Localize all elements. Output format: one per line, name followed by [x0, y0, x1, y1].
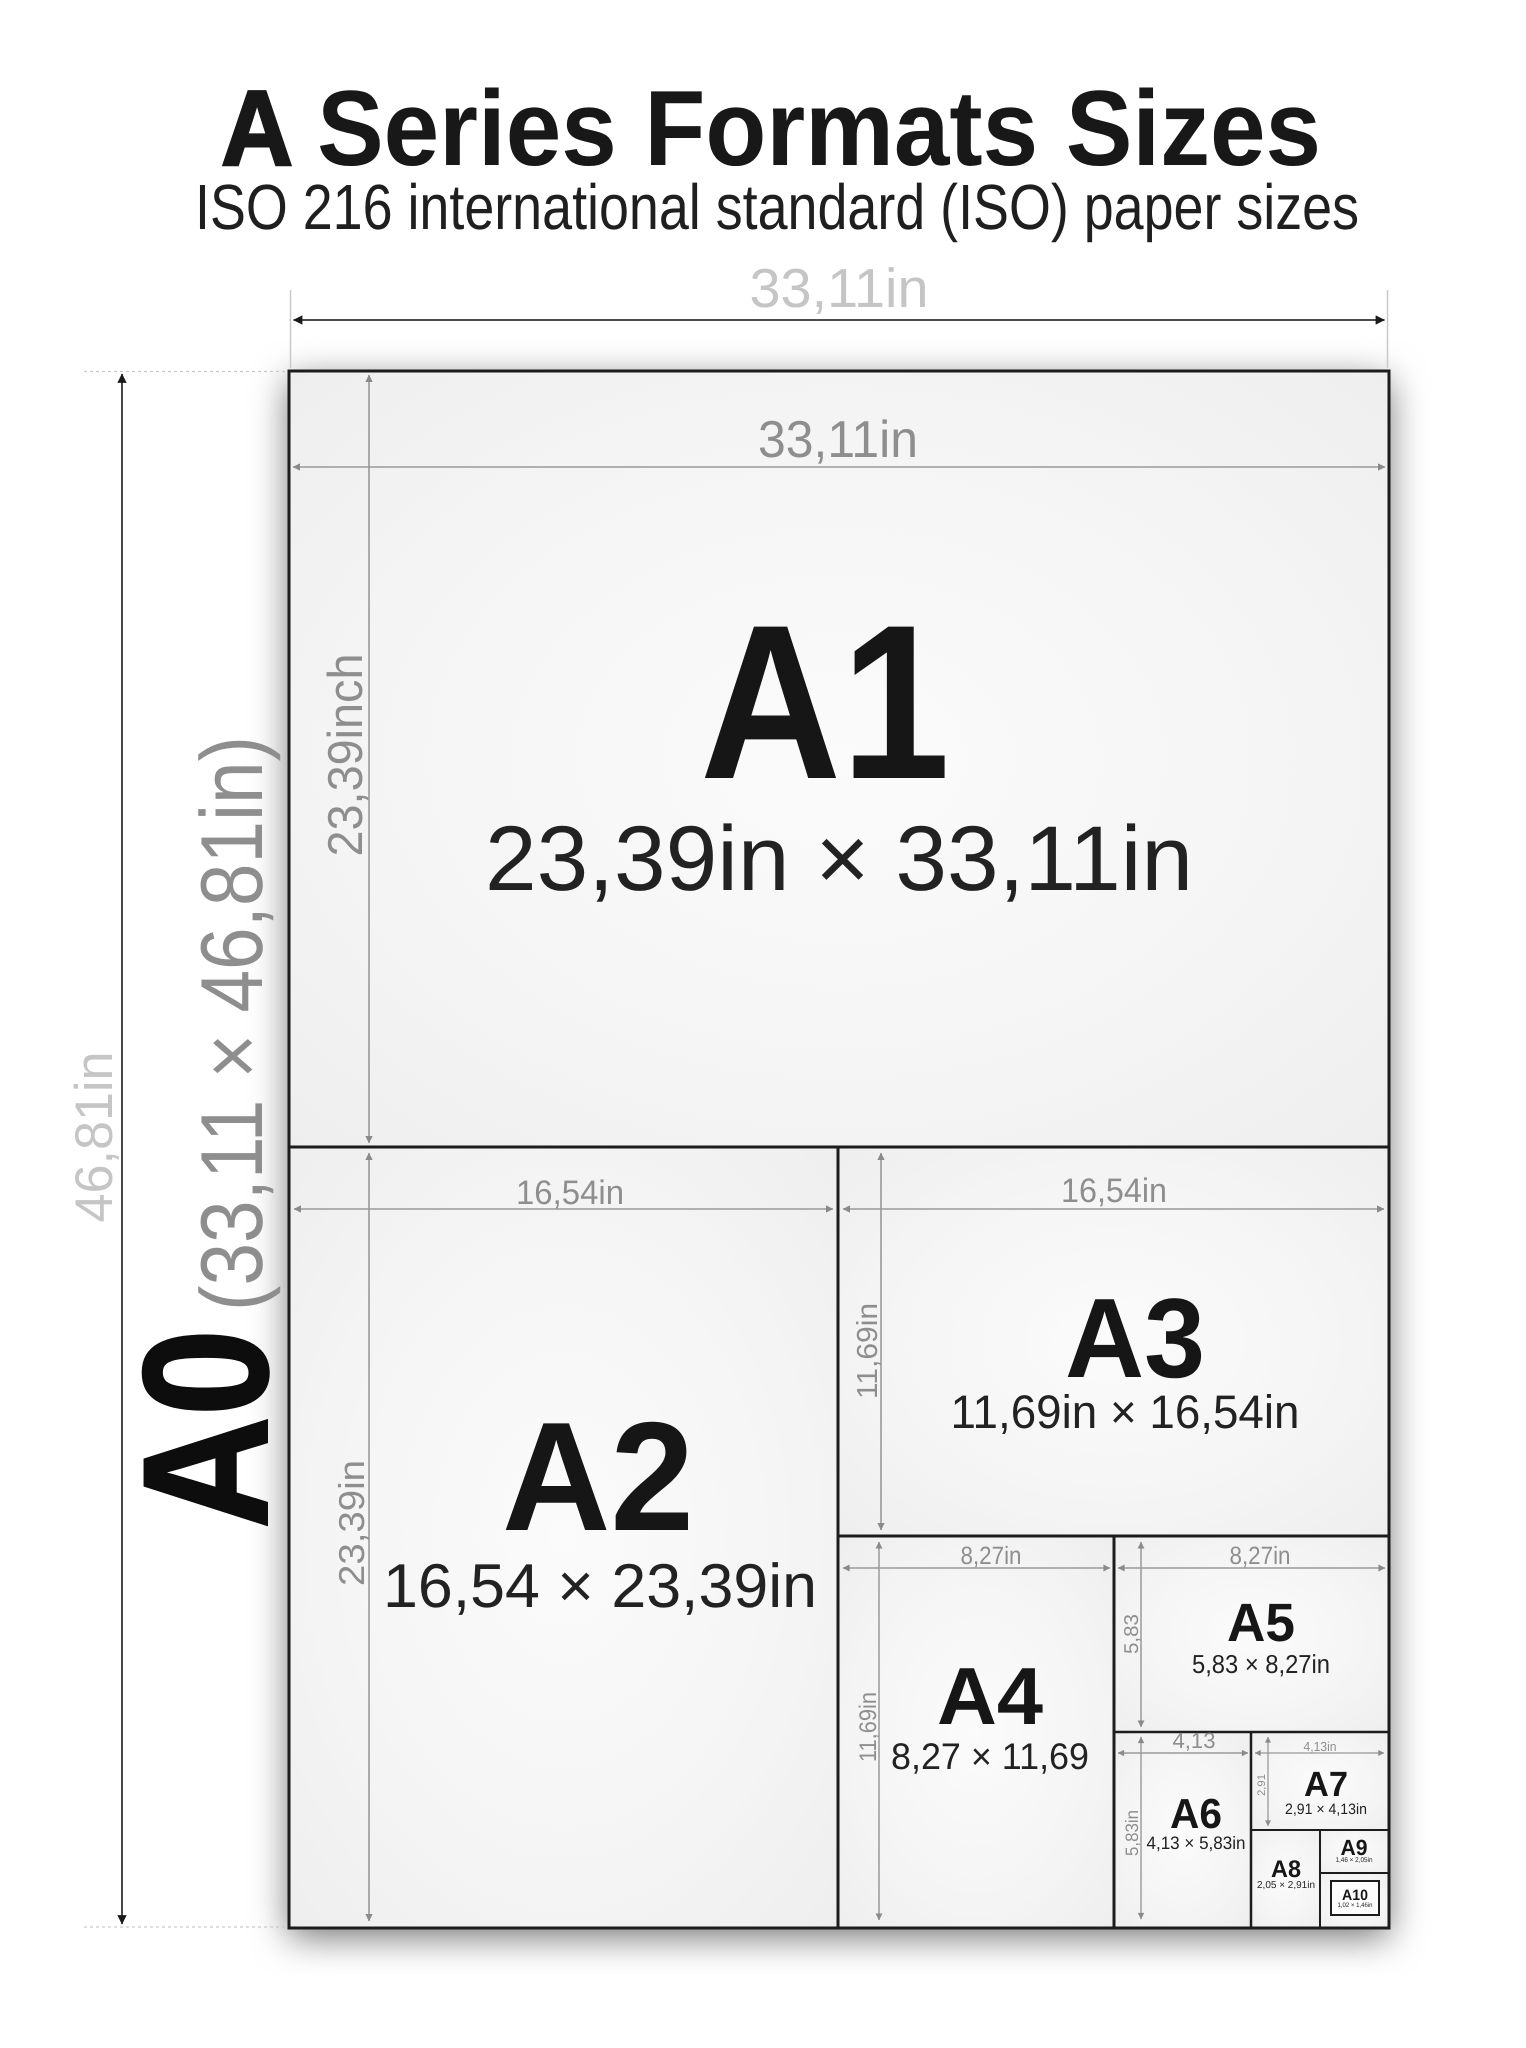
svg-text:16,54in: 16,54in [516, 1174, 624, 1212]
svg-text:A7: A7 [1304, 1765, 1348, 1804]
svg-text:8,27in: 8,27in [961, 1542, 1022, 1570]
svg-text:1,02 × 1,46in: 1,02 × 1,46in [1338, 1902, 1373, 1909]
svg-text:2,05 × 2,91in: 2,05 × 2,91in [1257, 1880, 1315, 1891]
svg-text:4,13in: 4,13in [1304, 1739, 1337, 1754]
svg-text:A8: A8 [1271, 1856, 1301, 1883]
svg-text:46,81in: 46,81in [65, 1052, 124, 1223]
svg-text:A6: A6 [1170, 1790, 1222, 1837]
svg-text:5,83 × 8,27in: 5,83 × 8,27in [1192, 1649, 1330, 1679]
svg-text:(33,11 × 46,81in): (33,11 × 46,81in) [182, 736, 281, 1311]
svg-text:11,69in: 11,69in [855, 1692, 882, 1762]
svg-text:33,11in: 33,11in [750, 257, 929, 319]
svg-text:2,91: 2,91 [1256, 1774, 1268, 1796]
svg-text:16,54 × 23,39in: 16,54 × 23,39in [383, 1552, 817, 1621]
svg-text:A0: A0 [106, 1329, 305, 1529]
svg-text:4,13 × 5,83in: 4,13 × 5,83in [1147, 1833, 1246, 1853]
svg-text:A Series Formats Sizes: A Series Formats Sizes [221, 68, 1321, 188]
svg-text:11,69in × 16,54in: 11,69in × 16,54in [951, 1385, 1300, 1438]
svg-text:8,27in: 8,27in [1230, 1542, 1291, 1570]
svg-text:1,46 × 2,05in: 1,46 × 2,05in [1336, 1856, 1373, 1864]
svg-text:8,27 × 11,69: 8,27 × 11,69 [891, 1736, 1089, 1777]
svg-text:23,39in × 33,11in: 23,39in × 33,11in [485, 808, 1193, 910]
svg-text:11,69in: 11,69in [852, 1303, 884, 1399]
svg-text:23,39inch: 23,39inch [319, 654, 373, 857]
svg-text:A2: A2 [502, 1390, 694, 1563]
svg-text:A3: A3 [1065, 1275, 1205, 1401]
svg-text:5,83in: 5,83in [1122, 1810, 1142, 1856]
svg-text:ISO 216 international standard: ISO 216 international standard (ISO) pap… [195, 171, 1359, 243]
svg-text:33,11in: 33,11in [758, 411, 918, 469]
svg-text:A1: A1 [700, 579, 950, 825]
svg-text:A4: A4 [937, 1652, 1043, 1742]
svg-text:A5: A5 [1227, 1593, 1295, 1653]
svg-text:2,91 × 4,13in: 2,91 × 4,13in [1285, 1801, 1367, 1818]
svg-text:16,54in: 16,54in [1061, 1172, 1167, 1210]
svg-text:4,13: 4,13 [1173, 1728, 1216, 1753]
svg-text:23,39in: 23,39in [331, 1460, 372, 1586]
svg-text:5,83: 5,83 [1121, 1614, 1143, 1654]
